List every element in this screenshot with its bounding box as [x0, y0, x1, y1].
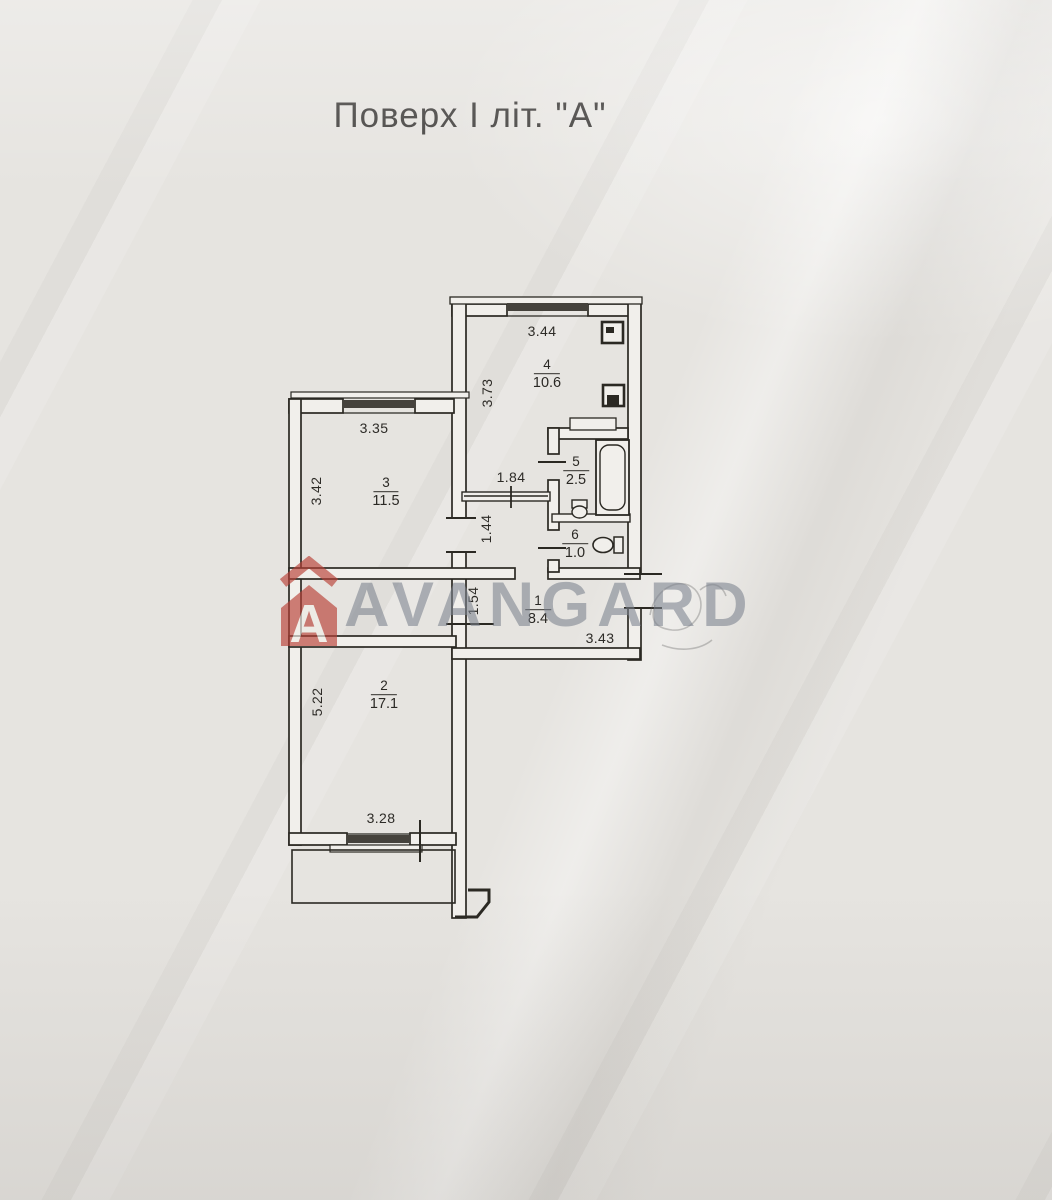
room-number: 5: [563, 455, 589, 471]
room-area: 17.1: [370, 695, 398, 712]
dim-3-42: 3.42: [308, 477, 324, 506]
window-sill-room2: [330, 845, 422, 852]
dim-3-73: 3.73: [479, 379, 495, 408]
dim-1-84: 1.84: [497, 469, 526, 485]
bathtub-icon: [596, 440, 629, 515]
avangard-logo-icon: A: [278, 556, 340, 648]
room-label-5: 5 2.5: [563, 455, 589, 489]
dim-3-35: 3.35: [360, 420, 389, 436]
photographed-floor-plan-page: Поверх І літ. "А": [0, 0, 1052, 1200]
room-area: 11.5: [372, 492, 399, 509]
room-label-2: 2 17.1: [370, 679, 398, 713]
room-number: 3: [373, 476, 399, 492]
window-sill-room4: [450, 297, 642, 304]
room-area: 2.5: [566, 471, 586, 488]
room-area: 10.6: [533, 374, 561, 391]
window-sill-room3: [291, 392, 469, 398]
toilet-icon: [593, 537, 623, 553]
logo-letter: A: [290, 594, 329, 648]
watermark-brand-text: AVANGARD: [344, 574, 755, 637]
room-number: 2: [371, 679, 397, 695]
washbasin-icon: [572, 500, 587, 518]
dim-1-44: 1.44: [478, 515, 494, 544]
dim-5-22: 5.22: [309, 688, 325, 717]
dim-3-44: 3.44: [528, 323, 557, 339]
room-label-4: 4 10.6: [533, 358, 561, 392]
room-label-3: 3 11.5: [372, 476, 399, 510]
room-label-6: 6 1.0: [562, 528, 588, 562]
vent-shaft-icon: [602, 322, 623, 343]
dim-3-28: 3.28: [367, 810, 396, 826]
room-number: 6: [562, 528, 588, 544]
room-number: 4: [534, 358, 560, 374]
duct-box-icon: [603, 385, 624, 406]
room-area: 1.0: [565, 544, 585, 561]
